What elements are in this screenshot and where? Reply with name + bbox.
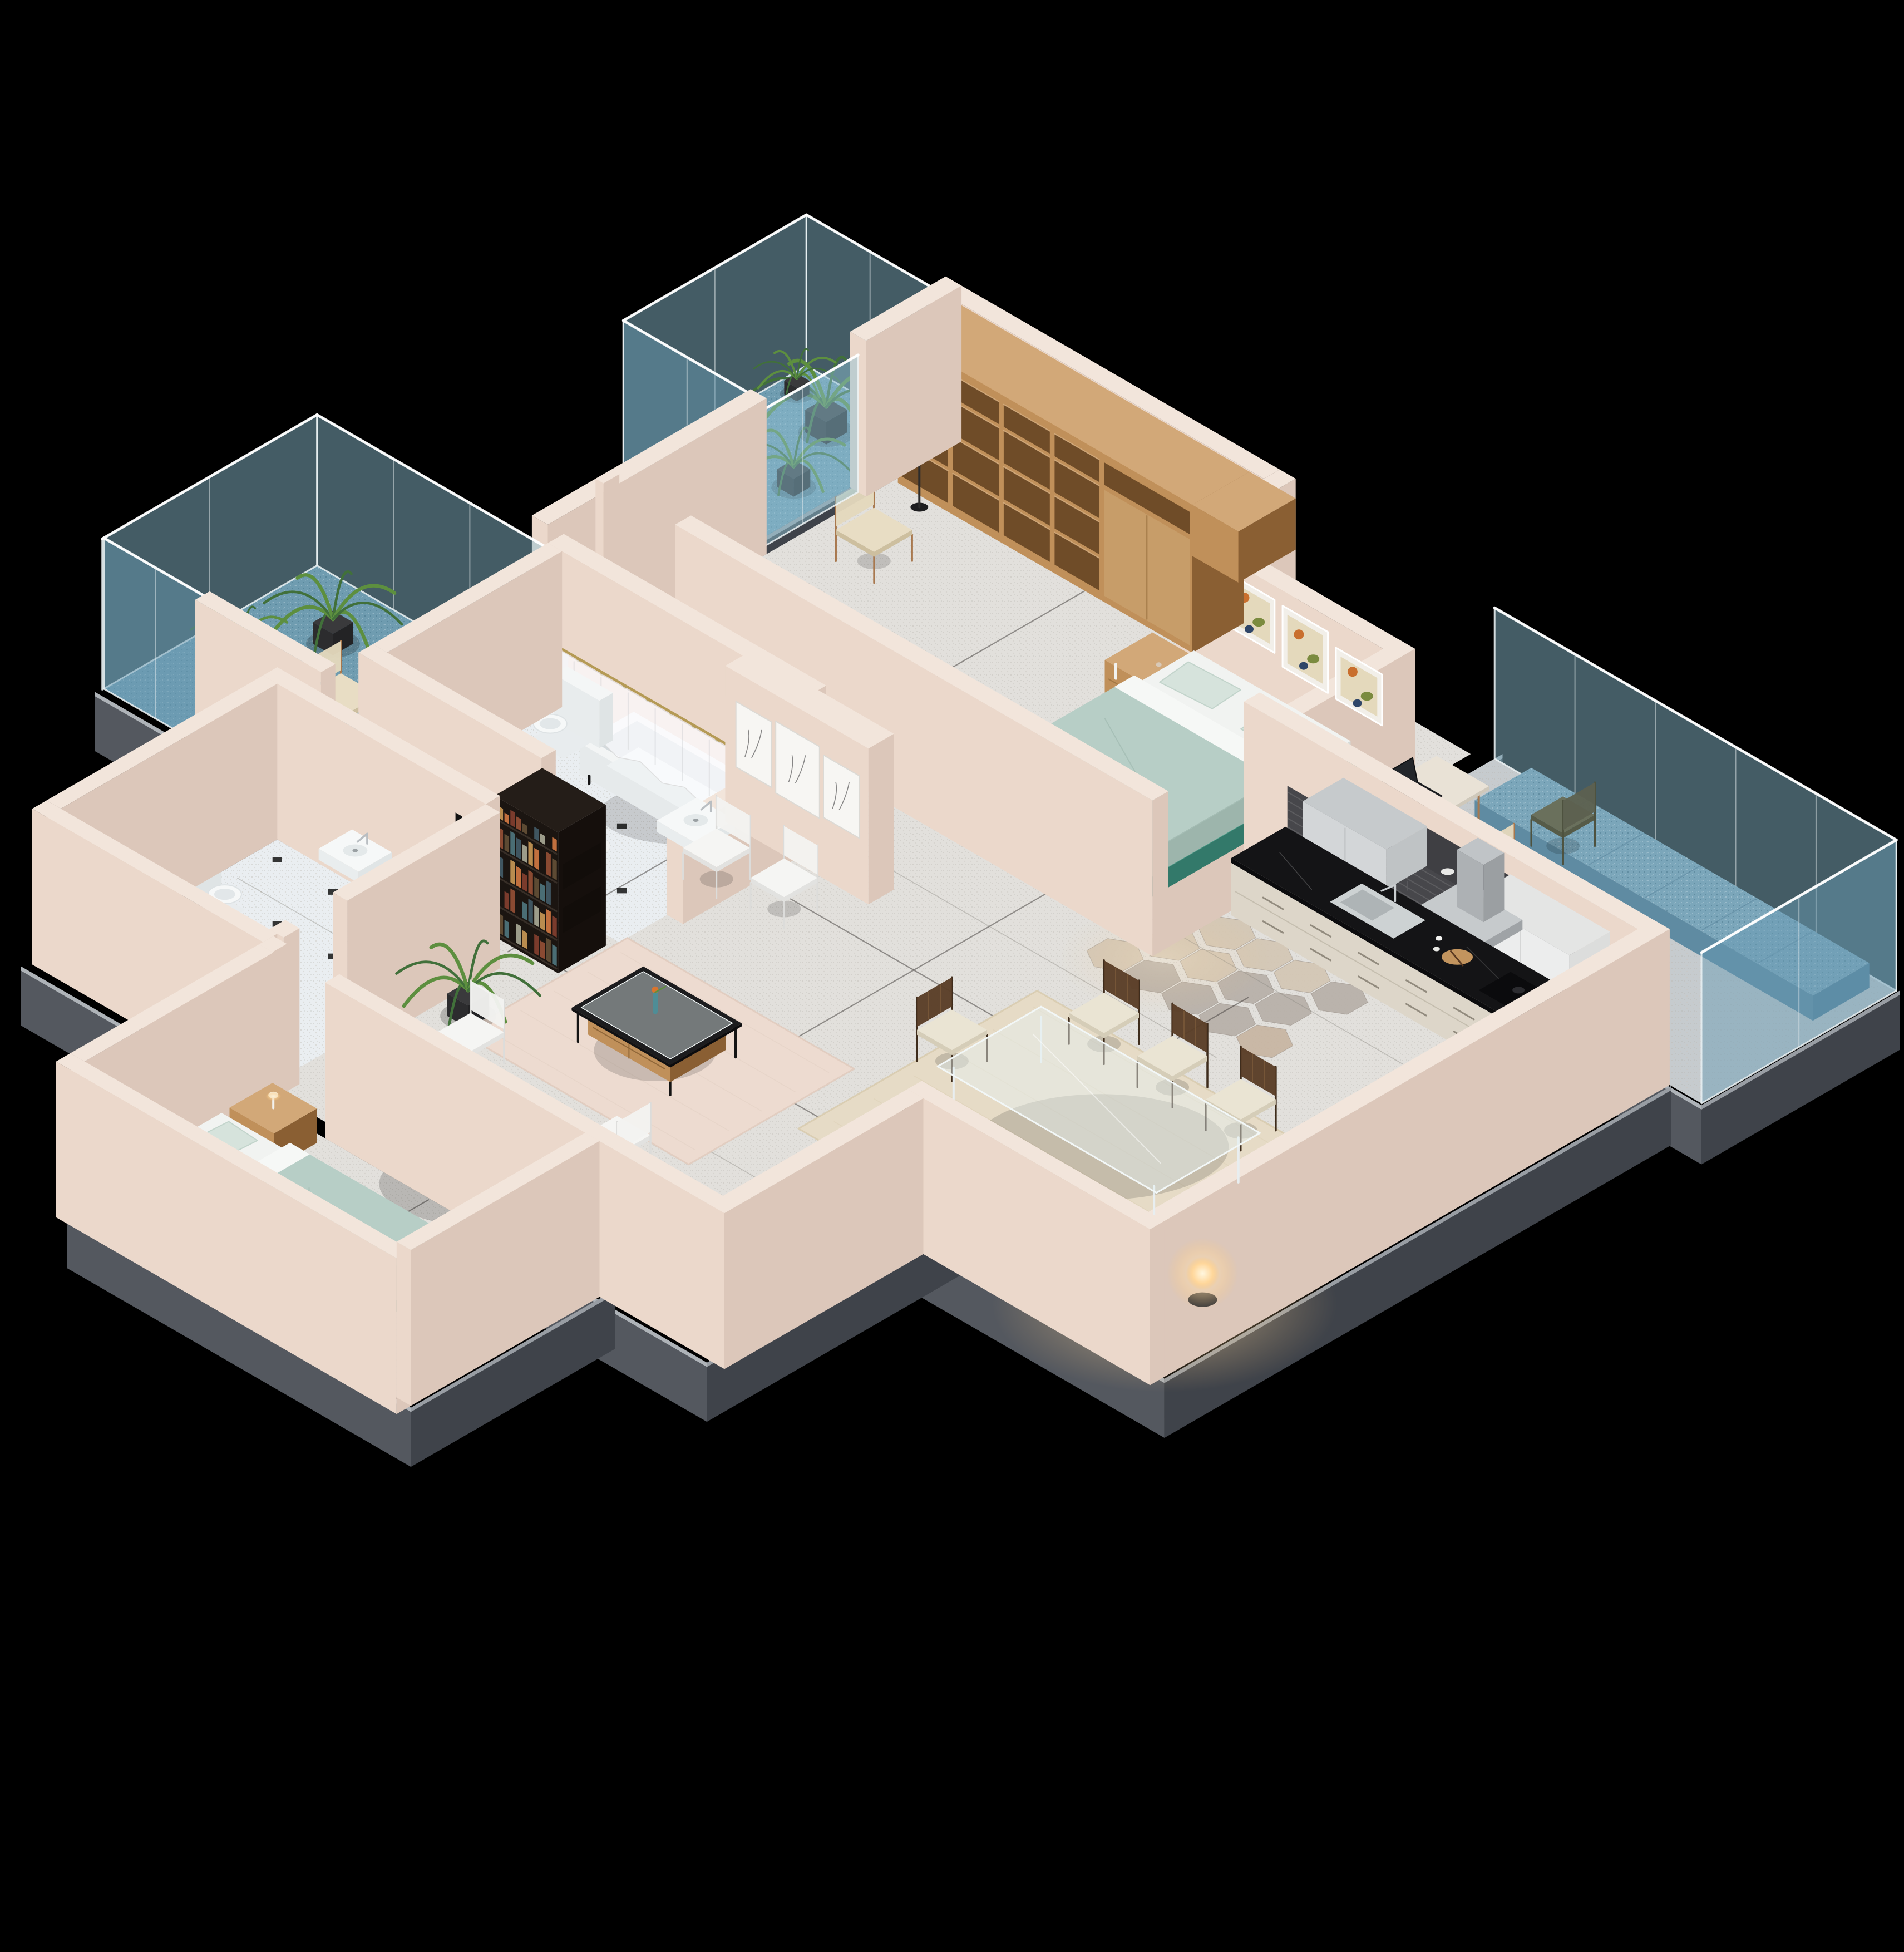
glowing-floor-lamp [1167,1238,1238,1309]
floorplan-render [0,0,1904,1952]
floorplan-stage [0,0,1904,1952]
bookshelf [495,768,606,973]
toilet-tank [599,693,613,748]
cutting-board [1442,949,1473,965]
